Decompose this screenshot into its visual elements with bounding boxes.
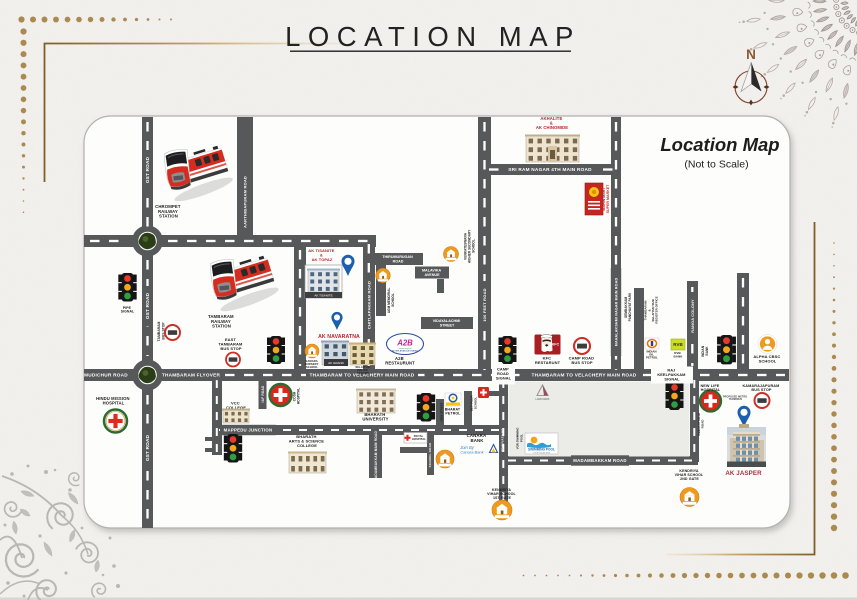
svg-text:BETHALDA SCHOOL: BETHALDA SCHOOL xyxy=(470,394,478,411)
svg-text:AARTHIBAPURAM ROAD: AARTHIBAPURAM ROAD xyxy=(243,176,248,228)
svg-text:100 FEET ROAD: 100 FEET ROAD xyxy=(482,288,487,322)
svg-text:RANGA COLONY: RANGA COLONY xyxy=(691,299,695,333)
svg-text:THAMBARAM TO VELACHERY MAIN RO: THAMBARAM TO VELACHERY MAIN ROAD xyxy=(531,373,636,378)
svg-text:MUDICHUR ROAD: MUDICHUR ROAD xyxy=(84,373,128,378)
svg-text:ADYAR ANANDA BHAVAN: ADYAR ANANDA BHAVAN xyxy=(392,350,419,353)
svg-text:SEMBAKKAM PANCHAYAT PARK: SEMBAKKAM PANCHAYAT PARK xyxy=(624,292,632,321)
svg-text:RVB: RVB xyxy=(673,342,683,347)
svg-text:AK GRAND: AK GRAND xyxy=(328,361,345,365)
svg-text:LAND MARK: LAND MARK xyxy=(536,398,550,401)
svg-text:CHROMPET RAILWAY STATION: CHROMPET RAILWAY STATION xyxy=(155,204,182,219)
svg-text:SRINIVASA RD: SRINIVASA RD xyxy=(501,428,505,452)
svg-text:CAMP ROAD BUS STOP: CAMP ROAD BUS STOP xyxy=(569,356,596,365)
svg-text:(Not to Scale): (Not to Scale) xyxy=(684,159,748,171)
svg-text:THAMBARAM & SELAIYUR SUB REGIS: THAMBARAM & SELAIYUR SUB REGISTER OFFICE xyxy=(644,296,659,323)
svg-text:GST ROAD: GST ROAD xyxy=(145,156,150,183)
svg-text:TAMBARAM BUS STOP: TAMBARAM BUS STOP xyxy=(157,321,165,342)
svg-text:MAHALAKSHMI NAGAR MAIN ROAD: MAHALAKSHMI NAGAR MAIN ROAD xyxy=(615,278,619,347)
svg-text:SCHOOL ROAD: SCHOOL ROAD xyxy=(428,442,432,467)
svg-text:THAMBARAM FLYOVER: THAMBARAM FLYOVER xyxy=(162,373,221,378)
svg-text:ROYAL HOSPITAL: ROYAL HOSPITAL xyxy=(412,434,426,441)
svg-text:NEW STREET: NEW STREET xyxy=(440,402,444,421)
svg-text:IAF ROAD: IAF ROAD xyxy=(261,385,265,403)
svg-text:SAMARA NURSERY SCHOOL: SAMARA NURSERY SCHOOL xyxy=(305,359,320,369)
svg-text:GST ROAD: GST ROAD xyxy=(145,434,150,461)
svg-text:LOCATION MAP: LOCATION MAP xyxy=(285,21,581,52)
svg-text:BHARATH UNIVERSITY: BHARATH UNIVERSITY xyxy=(362,412,388,422)
svg-text:MAPPEDU JUNCTION: MAPPEDU JUNCTION xyxy=(224,428,273,433)
svg-text:Canara Bank: Canara Bank xyxy=(460,450,484,455)
svg-text:BHARAT PETROL: BHARAT PETROL xyxy=(445,408,462,416)
svg-text:AK JASPER: AK JASPER xyxy=(725,470,762,477)
svg-text:NEW LIFE HOSPITAL: NEW LIFE HOSPITAL xyxy=(700,384,720,392)
svg-text:YOUR ONLINE NEW: YOUR ONLINE NEW xyxy=(533,452,550,454)
svg-text:CAMP ROAD SIGNAL: CAMP ROAD SIGNAL xyxy=(496,367,512,381)
svg-text:INDIAN BANK: INDIAN BANK xyxy=(701,345,709,357)
svg-text:A2B: A2B xyxy=(396,339,413,348)
svg-text:CHITLAPAKKAM ROAD: CHITLAPAKKAM ROAD xyxy=(367,281,372,329)
svg-text:KFC: KFC xyxy=(552,343,560,347)
svg-text:MADAMBAKKAM MAIN ROAD: MADAMBAKKAM MAIN ROAD xyxy=(374,431,378,481)
svg-text:MAHIN MARTSUPER MARKET: MAHIN MARTSUPER MARKET xyxy=(602,184,610,214)
svg-text:SWIMMING POOL: SWIMMING POOL xyxy=(528,448,555,452)
svg-text:GST ROAD: GST ROAD xyxy=(145,292,150,319)
svg-text:SELAIYUR POLICE STATION: SELAIYUR POLICE STATION xyxy=(355,365,370,375)
svg-text:MALAVIKA AVENUE: MALAVIKA AVENUE xyxy=(422,269,442,278)
svg-text:Location Map: Location Map xyxy=(660,134,779,155)
svg-text:AK NAVARATNA: AK NAVARATNA xyxy=(318,334,360,340)
svg-text:MADAMBAKKAM ROAD: MADAMBAKKAM ROAD xyxy=(573,458,626,463)
svg-text:N: N xyxy=(746,47,756,62)
svg-text:AK TISANITE: AK TISANITE xyxy=(314,293,332,297)
svg-text:SRI RAM NAGAR 4TH MAIN ROAD: SRI RAM NAGAR 4TH MAIN ROAD xyxy=(508,167,592,172)
